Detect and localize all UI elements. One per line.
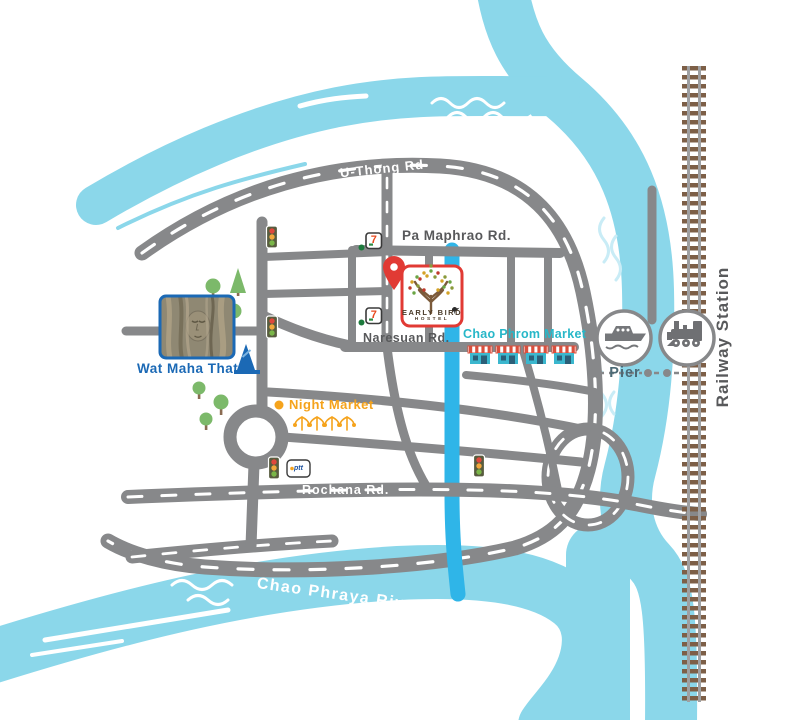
label-rochana-rd: Rochana Rd. bbox=[302, 484, 389, 497]
ptt-logo-text: ptt bbox=[294, 465, 303, 472]
label-pier: Pier bbox=[602, 366, 648, 381]
label-wat-maha-that: Wat Maha That bbox=[137, 362, 238, 376]
label-night-market: Night Market bbox=[289, 398, 374, 411]
label-naresuan-rd: Naresuan Rd. bbox=[363, 332, 450, 345]
river-chao-phraya bbox=[0, 555, 598, 720]
seven-eleven-text-2: 7 bbox=[366, 310, 382, 321]
night-market-dot bbox=[275, 401, 284, 410]
label-pa-maphrao-rd: Pa Maphrao Rd. bbox=[402, 229, 511, 243]
seven-eleven-text-1: 7 bbox=[366, 235, 382, 246]
roundabout bbox=[230, 411, 282, 463]
lamp-icons bbox=[294, 417, 355, 430]
train-icon bbox=[660, 311, 714, 365]
pier-boat-icon bbox=[597, 311, 651, 365]
label-chao-phrom-market: Chao Phrom Market bbox=[463, 328, 586, 341]
label-railway-station: Railway Station bbox=[714, 212, 731, 462]
wat-maha-that-photo bbox=[160, 296, 234, 358]
hostel-name-text: EARLY BIRD bbox=[402, 309, 462, 317]
hostel-sub-text: HOSTEL bbox=[402, 318, 462, 323]
map-canvas: Pasak River U-Thong Rd Pa Maphrao Rd. Na… bbox=[0, 0, 800, 720]
railway-track bbox=[689, 66, 700, 702]
